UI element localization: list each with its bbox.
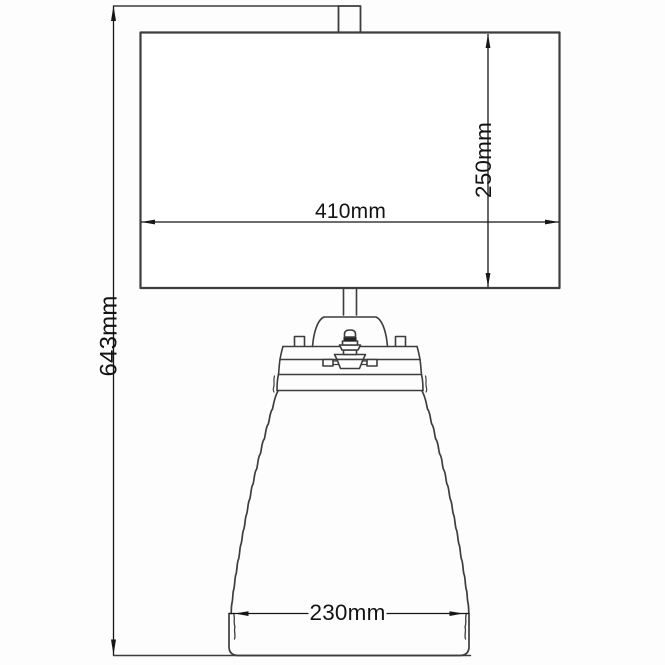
- harp-right-tab: [367, 360, 377, 367]
- cap-right-edge-tick: [426, 376, 427, 392]
- switch-knob: [345, 330, 356, 337]
- lamp-body: [231, 391, 469, 614]
- cap-right-tab: [396, 337, 406, 347]
- dim-label-shade-width: 410mm: [315, 200, 386, 223]
- socket-switch: [323, 330, 377, 369]
- lamp-finial-stem: [339, 6, 361, 32]
- arrow-down-total-height: [111, 640, 116, 656]
- lamp-geometry: [114, 6, 560, 656]
- body-left-side: [231, 391, 278, 614]
- arrow-left-base-width: [235, 611, 249, 616]
- harp-left-tab: [323, 360, 333, 367]
- cap-right-profile: [417, 347, 423, 391]
- lamp-dimension-diagram: 410mm 250mm 643mm 230mm: [0, 0, 665, 665]
- cap-left-tab: [295, 337, 305, 347]
- body-right-side: [422, 391, 469, 614]
- base-left-notch: [234, 614, 236, 640]
- dim-label-base-width: 230mm: [309, 600, 385, 625]
- cap-left-profile: [277, 347, 283, 391]
- cap-left-edge-tick: [273, 376, 274, 392]
- dim-label-shade-height: 250mm: [471, 122, 496, 198]
- switch-band: [343, 341, 358, 345]
- socket-body: [337, 360, 363, 369]
- base-right-notch: [465, 614, 467, 640]
- arrow-up-total-height: [111, 6, 116, 22]
- arrow-right-base-width: [450, 611, 464, 616]
- lamp-stem: [344, 288, 357, 315]
- lamp-shade-outline: [141, 33, 560, 289]
- lamp-technical-drawing: 410mm 250mm 643mm 230mm: [0, 0, 665, 665]
- dim-label-total-height: 643mm: [96, 295, 123, 376]
